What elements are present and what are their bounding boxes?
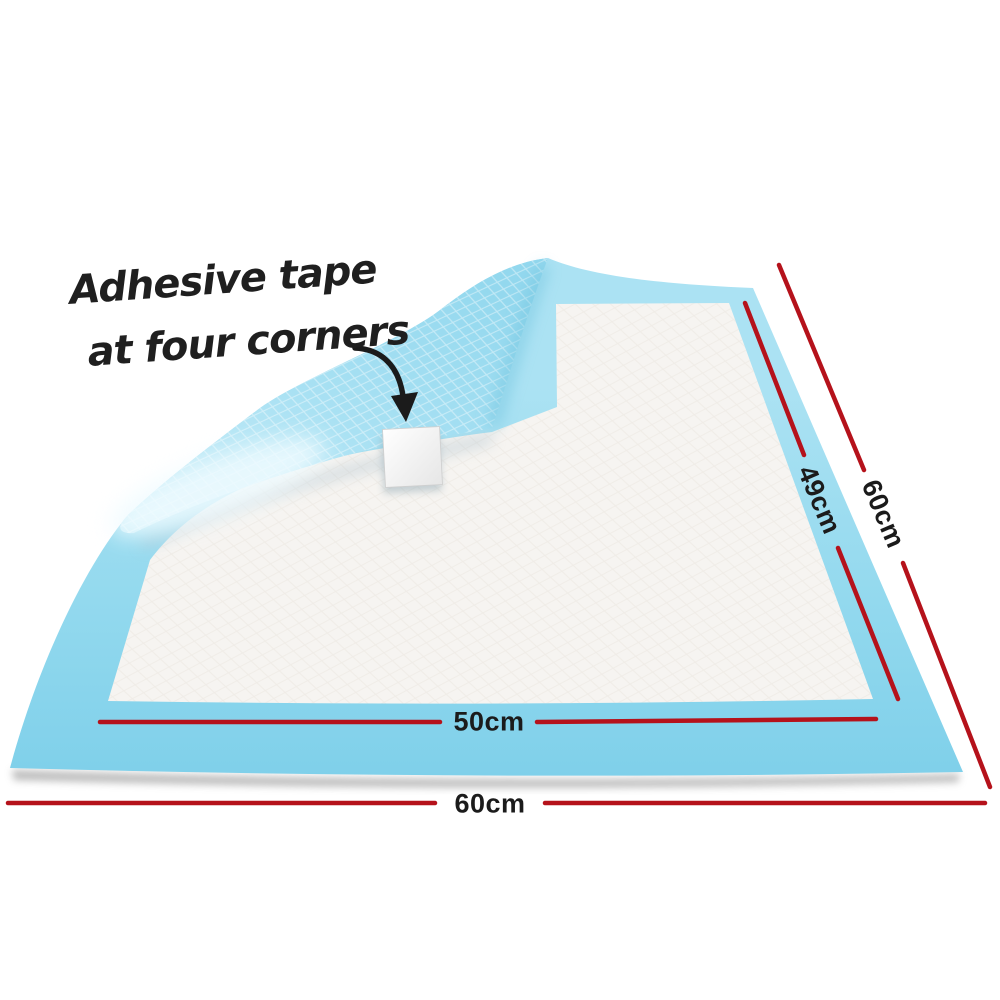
dimension-label-inner-bottom: 50cm bbox=[453, 707, 524, 738]
dimension-label-outer-bottom: 60cm bbox=[454, 789, 525, 820]
adhesive-tape bbox=[381, 427, 443, 494]
pad-illustration bbox=[0, 0, 1000, 1000]
product-image: Adhesive tape at four corners 50cm 60cm … bbox=[0, 0, 1000, 1000]
dimension-line-inner-bottom-right bbox=[537, 719, 876, 722]
